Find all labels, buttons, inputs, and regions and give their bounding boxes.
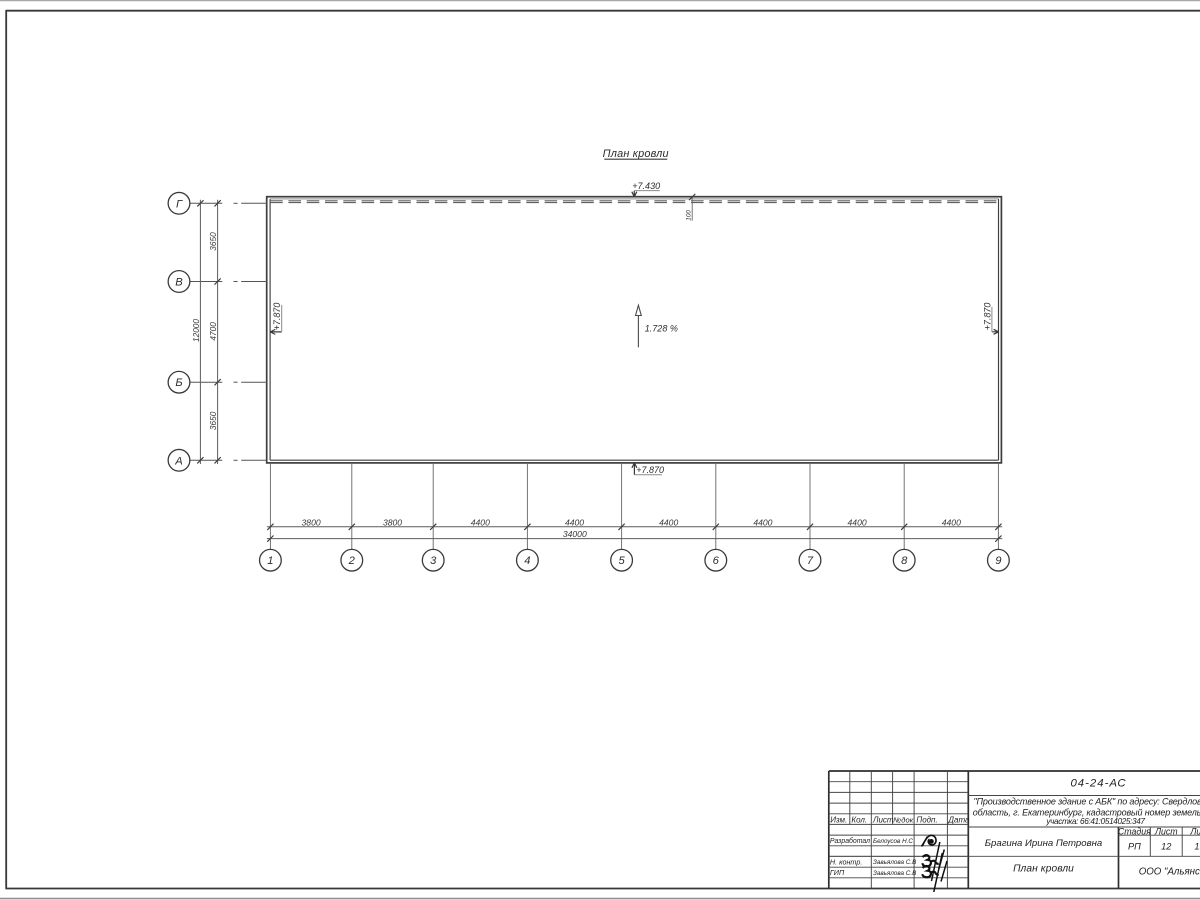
svg-text:3800: 3800 (302, 517, 321, 527)
svg-text:12: 12 (1161, 842, 1171, 852)
svg-text:Стадия: Стадия (1118, 826, 1151, 836)
svg-text:1.728 %: 1.728 % (645, 324, 678, 334)
svg-text:4400: 4400 (471, 517, 490, 527)
svg-text:9: 9 (995, 555, 1001, 567)
svg-text:3800: 3800 (383, 517, 402, 527)
svg-text:4400: 4400 (659, 517, 678, 527)
svg-text:4700: 4700 (208, 322, 218, 341)
svg-text:+7.870: +7.870 (982, 303, 992, 331)
svg-text:Изм.: Изм. (830, 815, 847, 824)
svg-text:Кол.: Кол. (851, 815, 867, 824)
svg-text:Подп.: Подп. (916, 815, 937, 824)
svg-text:Белоусов Н.С: Белоусов Н.С (873, 838, 913, 845)
svg-text:№док.: №док. (893, 815, 915, 824)
svg-text:РП: РП (1128, 842, 1141, 852)
svg-text:А: А (174, 455, 182, 467)
svg-text:Дата: Дата (947, 815, 970, 824)
svg-text:3650: 3650 (208, 411, 218, 430)
svg-text:4400: 4400 (848, 517, 867, 527)
svg-text:3650: 3650 (208, 232, 218, 251)
svg-text:3: 3 (430, 555, 437, 567)
svg-text:7: 7 (807, 555, 814, 567)
svg-text:Г: Г (176, 198, 183, 210)
svg-text:Завьялова С.В: Завьялова С.В (873, 870, 916, 877)
svg-text:Б: Б (175, 377, 182, 389)
svg-text:8: 8 (901, 555, 908, 567)
svg-text:Брагина Ирина Петровна: Брагина Ирина Петровна (985, 838, 1102, 849)
svg-text:+7.430: +7.430 (632, 181, 660, 191)
svg-text:План кровли: План кровли (1013, 863, 1074, 874)
svg-text:4400: 4400 (753, 517, 772, 527)
svg-text:"Производственное здание с АБК: "Производственное здание с АБК" по адрес… (974, 797, 1200, 807)
svg-text:2: 2 (348, 555, 356, 567)
svg-text:Завьялова С.В: Завьялова С.В (873, 859, 916, 866)
svg-text:область, г. Екатеринбург, када: область, г. Екатеринбург, кадастровый но… (973, 807, 1200, 817)
svg-text:100: 100 (685, 210, 692, 221)
svg-text:5: 5 (618, 555, 625, 567)
svg-text:ООО "Альянс": ООО "Альянс" (1139, 866, 1200, 877)
svg-text:ГИП: ГИП (830, 868, 845, 877)
svg-text:34000: 34000 (563, 529, 587, 539)
svg-text:04-24-АС: 04-24-АС (1070, 778, 1126, 790)
svg-text:План кровли: План кровли (603, 148, 669, 160)
svg-text:+7.870: +7.870 (636, 465, 664, 475)
svg-text:Н. контр.: Н. контр. (830, 857, 862, 866)
svg-text:В: В (175, 277, 183, 289)
svg-text:+7.870: +7.870 (272, 303, 282, 331)
svg-text:Лист: Лист (872, 815, 894, 824)
svg-text:1: 1 (267, 555, 273, 567)
svg-text:4400: 4400 (565, 517, 584, 527)
svg-text:Лист: Лист (1154, 826, 1178, 836)
svg-text:4400: 4400 (942, 517, 961, 527)
svg-text:участка: 66:41:0514025:347: участка: 66:41:0514025:347 (1045, 817, 1145, 826)
svg-text:13: 13 (1194, 842, 1200, 852)
svg-text:6: 6 (713, 555, 720, 567)
svg-text:4: 4 (524, 555, 530, 567)
svg-text:12000: 12000 (191, 319, 201, 342)
svg-text:Лис: Лис (1189, 826, 1200, 836)
svg-text:Разработал: Разработал (830, 837, 870, 845)
